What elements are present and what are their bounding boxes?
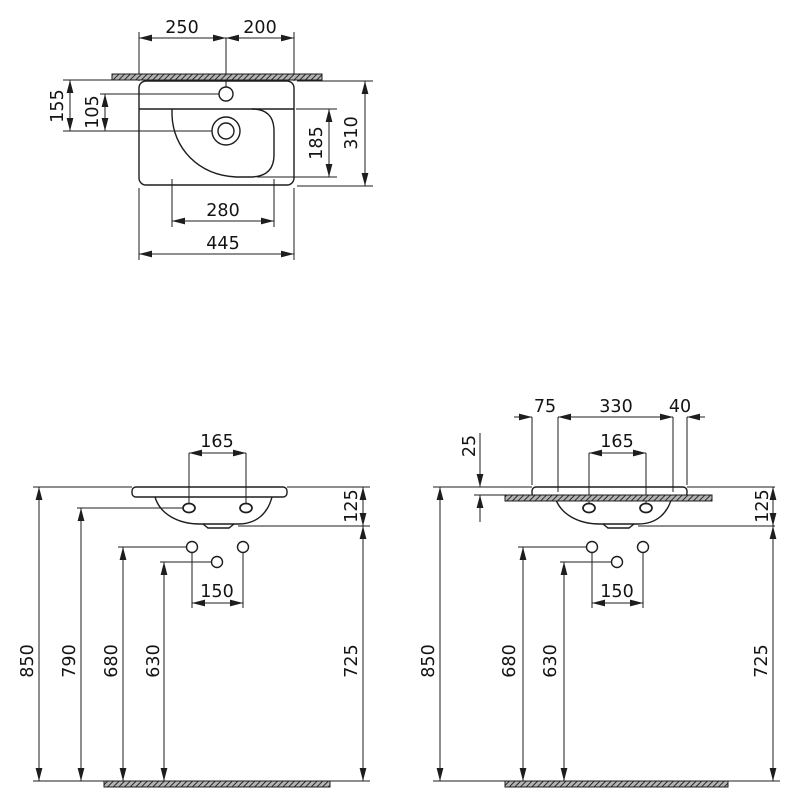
arrowhead [519, 414, 532, 421]
arrowhead [477, 474, 484, 487]
dim-label-105: 105 [83, 95, 103, 128]
arrowhead [78, 508, 85, 521]
arrowhead [362, 81, 369, 94]
arrowhead [437, 768, 444, 781]
dim-label-150: 150 [200, 582, 233, 602]
arrowhead [520, 547, 527, 560]
dim-label-40: 40 [669, 397, 691, 417]
arrowhead [233, 450, 246, 457]
hole-circle [587, 542, 598, 553]
bowl-outline [155, 497, 272, 524]
dim-label-310: 310 [342, 116, 362, 149]
hole-circle [238, 542, 249, 553]
dim-label-250: 250 [165, 18, 198, 38]
dim-label-185: 185 [307, 126, 327, 159]
front-view: 165125850790680630150725 [18, 432, 370, 787]
dim-label-125: 125 [342, 489, 362, 522]
dim-label-680: 680 [500, 644, 520, 677]
arrowhead [161, 768, 168, 781]
dim-label-150: 150 [600, 582, 633, 602]
dim-label-725: 725 [752, 644, 772, 677]
arrowhead [360, 768, 367, 781]
mounting-hole [240, 504, 252, 513]
arrowhead [161, 562, 168, 575]
dim-label-790: 790 [60, 644, 80, 677]
dim-label-165: 165 [200, 432, 233, 452]
arrowhead [120, 768, 127, 781]
front-view-wall-mounted: 753304025165125850680630150725 [419, 397, 780, 787]
dim-label-200: 200 [243, 18, 276, 38]
basin-outline [132, 487, 287, 497]
dim-label-630: 630 [541, 644, 561, 677]
dim-label-680: 680 [102, 644, 122, 677]
arrowhead [213, 35, 226, 42]
technical-drawing-page: 2502001551051853102804451651258507906806… [0, 0, 800, 800]
wall-hatch [112, 74, 322, 80]
arrowhead [120, 547, 127, 560]
dim-label-850: 850 [18, 644, 38, 677]
dim-label-725: 725 [342, 644, 362, 677]
arrowhead [172, 218, 185, 225]
arrowhead [281, 35, 294, 42]
arrowhead [261, 218, 274, 225]
plan-view: 250200155105185310280445 [48, 18, 373, 260]
dim-label-75: 75 [534, 397, 556, 417]
dim-label-445: 445 [206, 234, 239, 254]
arrowhead [770, 768, 777, 781]
arrowhead [226, 35, 239, 42]
washbasin-dimension-drawing: 2502001551051853102804451651258507906806… [0, 0, 800, 800]
arrowhead [770, 526, 777, 539]
arrowhead [633, 450, 646, 457]
dim-label-25: 25 [460, 435, 480, 457]
dim-label-125: 125 [753, 489, 773, 522]
dim-label-630: 630 [144, 644, 164, 677]
arrowhead [437, 487, 444, 500]
hole-circle [219, 87, 233, 101]
dim-label-165: 165 [600, 432, 633, 452]
arrowhead [78, 768, 85, 781]
arrowhead [281, 251, 294, 258]
hole-circle [218, 123, 234, 139]
arrowhead [477, 495, 484, 508]
hole-circle [212, 557, 223, 568]
arrowhead [36, 487, 43, 500]
hole-circle [638, 542, 649, 553]
arrowhead [558, 414, 571, 421]
wall-hatch [505, 495, 712, 501]
floor-hatch [505, 781, 728, 787]
dim-label-850: 850 [419, 644, 439, 677]
arrowhead [139, 251, 152, 258]
arrowhead [36, 768, 43, 781]
arrowhead [561, 562, 568, 575]
dim-label-155: 155 [48, 89, 68, 122]
mounting-hole [583, 504, 595, 513]
hole-circle [612, 557, 623, 568]
mounting-hole [183, 504, 195, 513]
arrowhead [326, 109, 333, 122]
arrowhead [362, 173, 369, 186]
arrowhead [520, 768, 527, 781]
mounting-hole [640, 504, 652, 513]
arrowhead [139, 35, 152, 42]
dim-label-330: 330 [599, 397, 632, 417]
floor-hatch [104, 781, 330, 787]
arrowhead [561, 768, 568, 781]
dim-label-280: 280 [206, 201, 239, 221]
arrowhead [360, 526, 367, 539]
hole-circle [187, 542, 198, 553]
arrowhead [326, 164, 333, 177]
